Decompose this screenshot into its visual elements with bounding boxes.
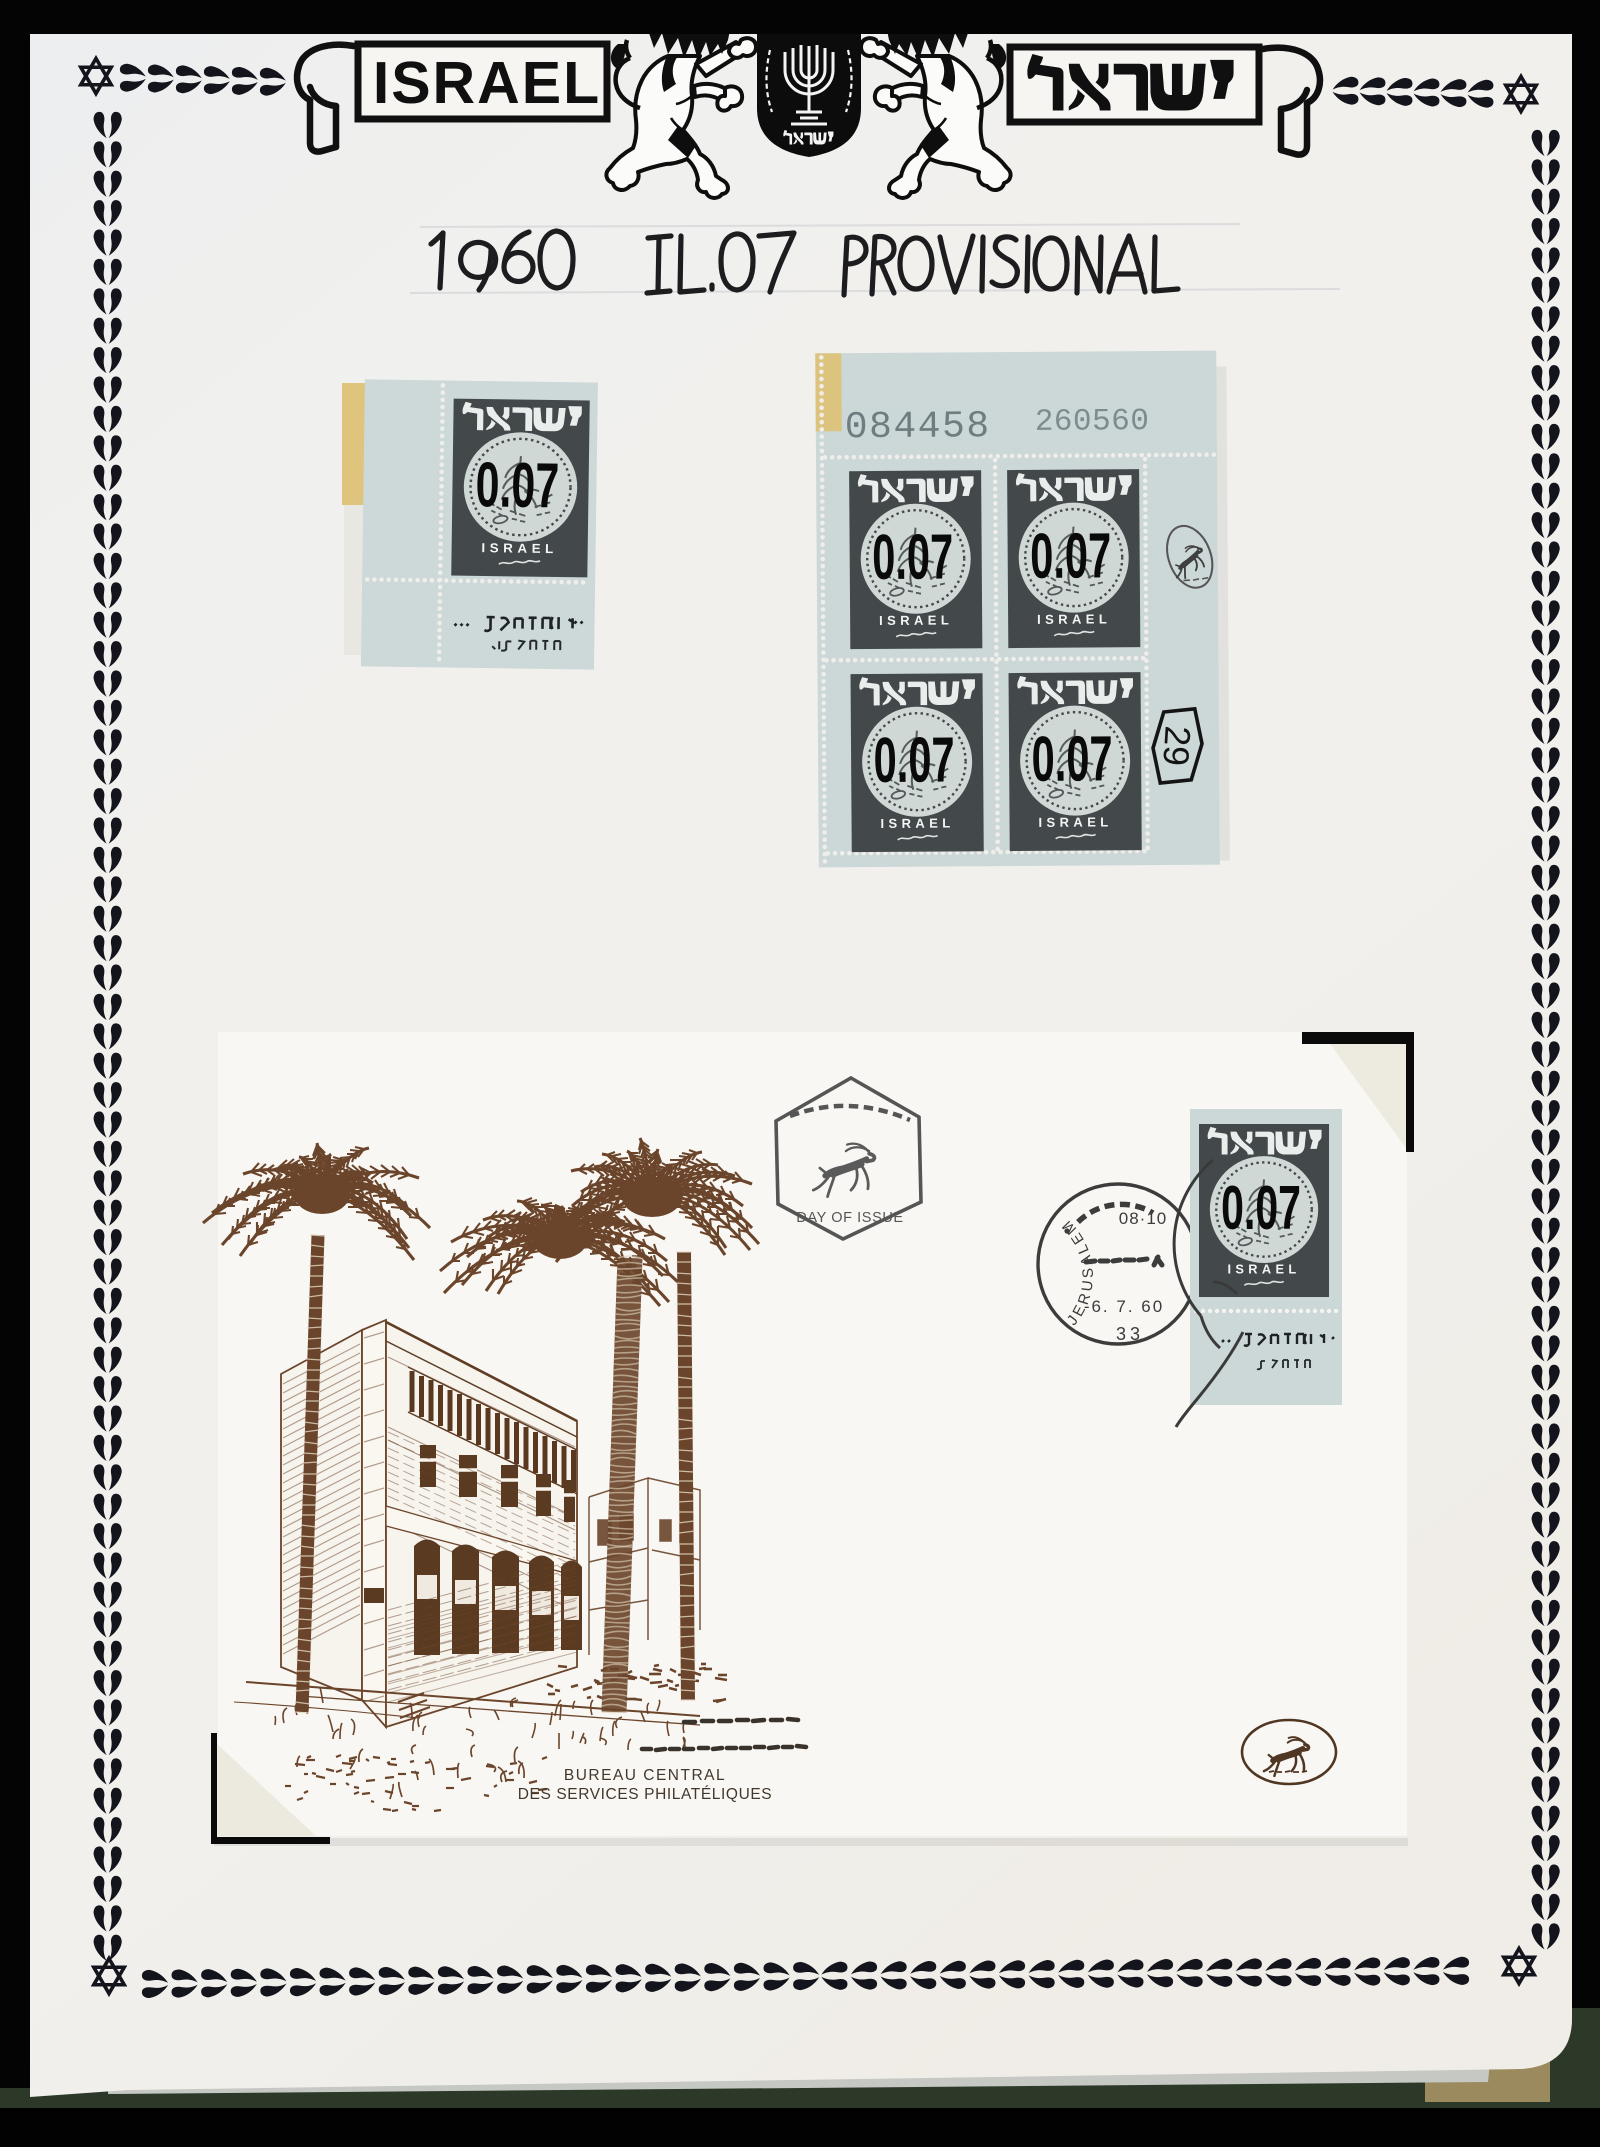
- svg-text:DES SERVICES PHILATÉLIQUES: DES SERVICES PHILATÉLIQUES: [518, 1786, 773, 1803]
- svg-text:33: 33: [1116, 1324, 1144, 1344]
- svg-text:260560: 260560: [1035, 404, 1150, 440]
- svg-text:29: 29: [1155, 725, 1198, 768]
- svg-text:BUREAU CENTRAL: BUREAU CENTRAL: [564, 1767, 726, 1784]
- svg-text:-6. 7. 60: -6. 7. 60: [1084, 1297, 1164, 1316]
- svg-text:ISRAEL: ISRAEL: [373, 50, 601, 116]
- svg-text:084458: 084458: [845, 405, 991, 449]
- svg-text:DAY OF ISSUE: DAY OF ISSUE: [796, 1210, 903, 1226]
- svg-text:08·10: 08·10: [1119, 1209, 1167, 1228]
